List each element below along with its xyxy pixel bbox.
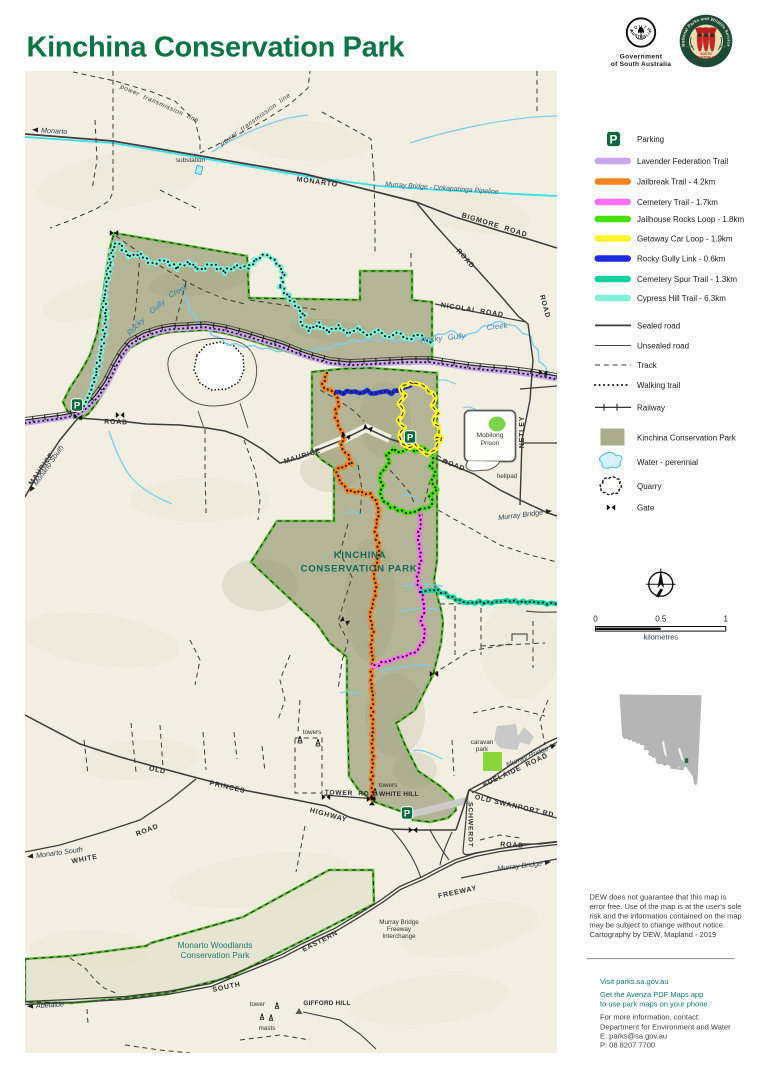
svg-text:Walking trail: Walking trail [637,381,680,390]
svg-text:Track: Track [637,361,658,370]
svg-text:Visit parks.sa.gov.au: Visit parks.sa.gov.au [600,977,669,986]
svg-text:Department for Environment and: Department for Environment and Water [600,1023,731,1032]
svg-text:substation: substation [176,157,206,164]
svg-text:P: P [404,809,411,820]
svg-text:Rocky Gully Link - 0.6km: Rocky Gully Link - 0.6km [637,255,726,264]
svg-text:For more information, contact:: For more information, contact: [600,1013,700,1022]
svg-text:WHITE HILL: WHITE HILL [379,791,419,798]
svg-text:tower: tower [250,1001,265,1008]
svg-text:may be subject to change witho: may be subject to change without notice. [590,921,726,930]
svg-text:Monarto: Monarto [41,126,68,136]
svg-text:of South Australia: of South Australia [611,61,671,68]
svg-text:Gate: Gate [637,504,655,513]
svg-text:caravan: caravan [471,739,494,746]
svg-text:DEW does not guarantee that th: DEW does not guarantee that this map is [590,893,727,902]
svg-text:Jailbreak Trail - 4.2km: Jailbreak Trail - 4.2km [637,178,716,187]
svg-text:Kinchina Conservation Park: Kinchina Conservation Park [27,32,406,64]
svg-text:park: park [476,746,489,753]
svg-text:KINCHINA: KINCHINA [334,550,387,561]
svg-text:Cemetery Spur Trail - 1.3km: Cemetery Spur Trail - 1.3km [637,275,737,284]
svg-text:to use park maps on your phone: to use park maps on your phone. [600,1000,710,1009]
svg-text:CONSERVATION PARK: CONSERVATION PARK [301,564,418,575]
svg-text:Interchange: Interchange [382,933,416,940]
svg-text:P: 08 8207 7700: P: 08 8207 7700 [600,1041,655,1050]
svg-text:Unsealed road: Unsealed road [637,342,689,351]
svg-text:NETLEY: NETLEY [519,416,526,448]
svg-text:Get the Avenza PDF Maps app: Get the Avenza PDF Maps app [600,990,703,999]
svg-text:towers: towers [379,782,398,789]
svg-text:GIFFORD HILL: GIFFORD HILL [303,1000,350,1007]
svg-text:Jailhouse Rocks Loop - 1.8km: Jailhouse Rocks Loop - 1.8km [637,215,745,224]
svg-text:0: 0 [593,615,598,624]
svg-text:Lavender Federation Trail: Lavender Federation Trail [637,157,728,166]
svg-text:kilometres: kilometres [643,633,678,642]
svg-text:P: P [610,133,618,147]
svg-text:Cypress Hill Trail - 6.3km: Cypress Hill Trail - 6.3km [637,294,726,303]
svg-text:helipad: helipad [497,473,518,480]
svg-text:Railway: Railway [637,403,665,412]
svg-text:P: P [74,401,81,412]
svg-text:Sealed road: Sealed road [637,321,680,330]
svg-text:Conservation Park: Conservation Park [181,950,251,960]
svg-text:Freeway: Freeway [387,926,412,933]
svg-text:Monarto Woodlands: Monarto Woodlands [178,940,253,950]
svg-text:P: P [407,433,414,444]
svg-text:risk and the information conta: risk and the information contained on th… [590,911,742,920]
svg-text:Mobilong: Mobilong [477,432,504,439]
svg-text:Parking: Parking [637,135,664,144]
svg-text:ROAD: ROAD [500,841,524,849]
svg-text:Water - perennial: Water - perennial [637,458,698,467]
svg-text:Kinchina Conservation Park: Kinchina Conservation Park [637,434,737,443]
svg-text:Government: Government [620,54,663,61]
svg-text:Prison: Prison [481,440,500,447]
svg-text:SCHWERDT: SCHWERDT [467,802,474,848]
svg-text:0.5: 0.5 [655,615,667,624]
svg-text:AUSTRALIA: AUSTRALIA [697,55,716,59]
svg-text:ROAD: ROAD [104,419,128,427]
svg-text:Murray Bridge: Murray Bridge [379,919,419,926]
svg-text:Quarry: Quarry [637,482,661,491]
svg-text:masts: masts [259,1025,276,1032]
svg-text:1: 1 [723,615,728,624]
svg-text:error free. Use of the map is: error free. Use of the map is at the use… [590,902,742,911]
svg-text:Cemetery Trail - 1.7km: Cemetery Trail - 1.7km [637,198,718,207]
svg-text:Getaway Car Loop - 1.9km: Getaway Car Loop - 1.9km [637,235,733,244]
svg-text:towers: towers [303,729,322,736]
svg-text:E: parks@sa.gov.au: E: parks@sa.gov.au [600,1032,667,1041]
svg-text:Cartography by DEW, Mapland -: Cartography by DEW, Mapland - 2019 [590,930,717,939]
